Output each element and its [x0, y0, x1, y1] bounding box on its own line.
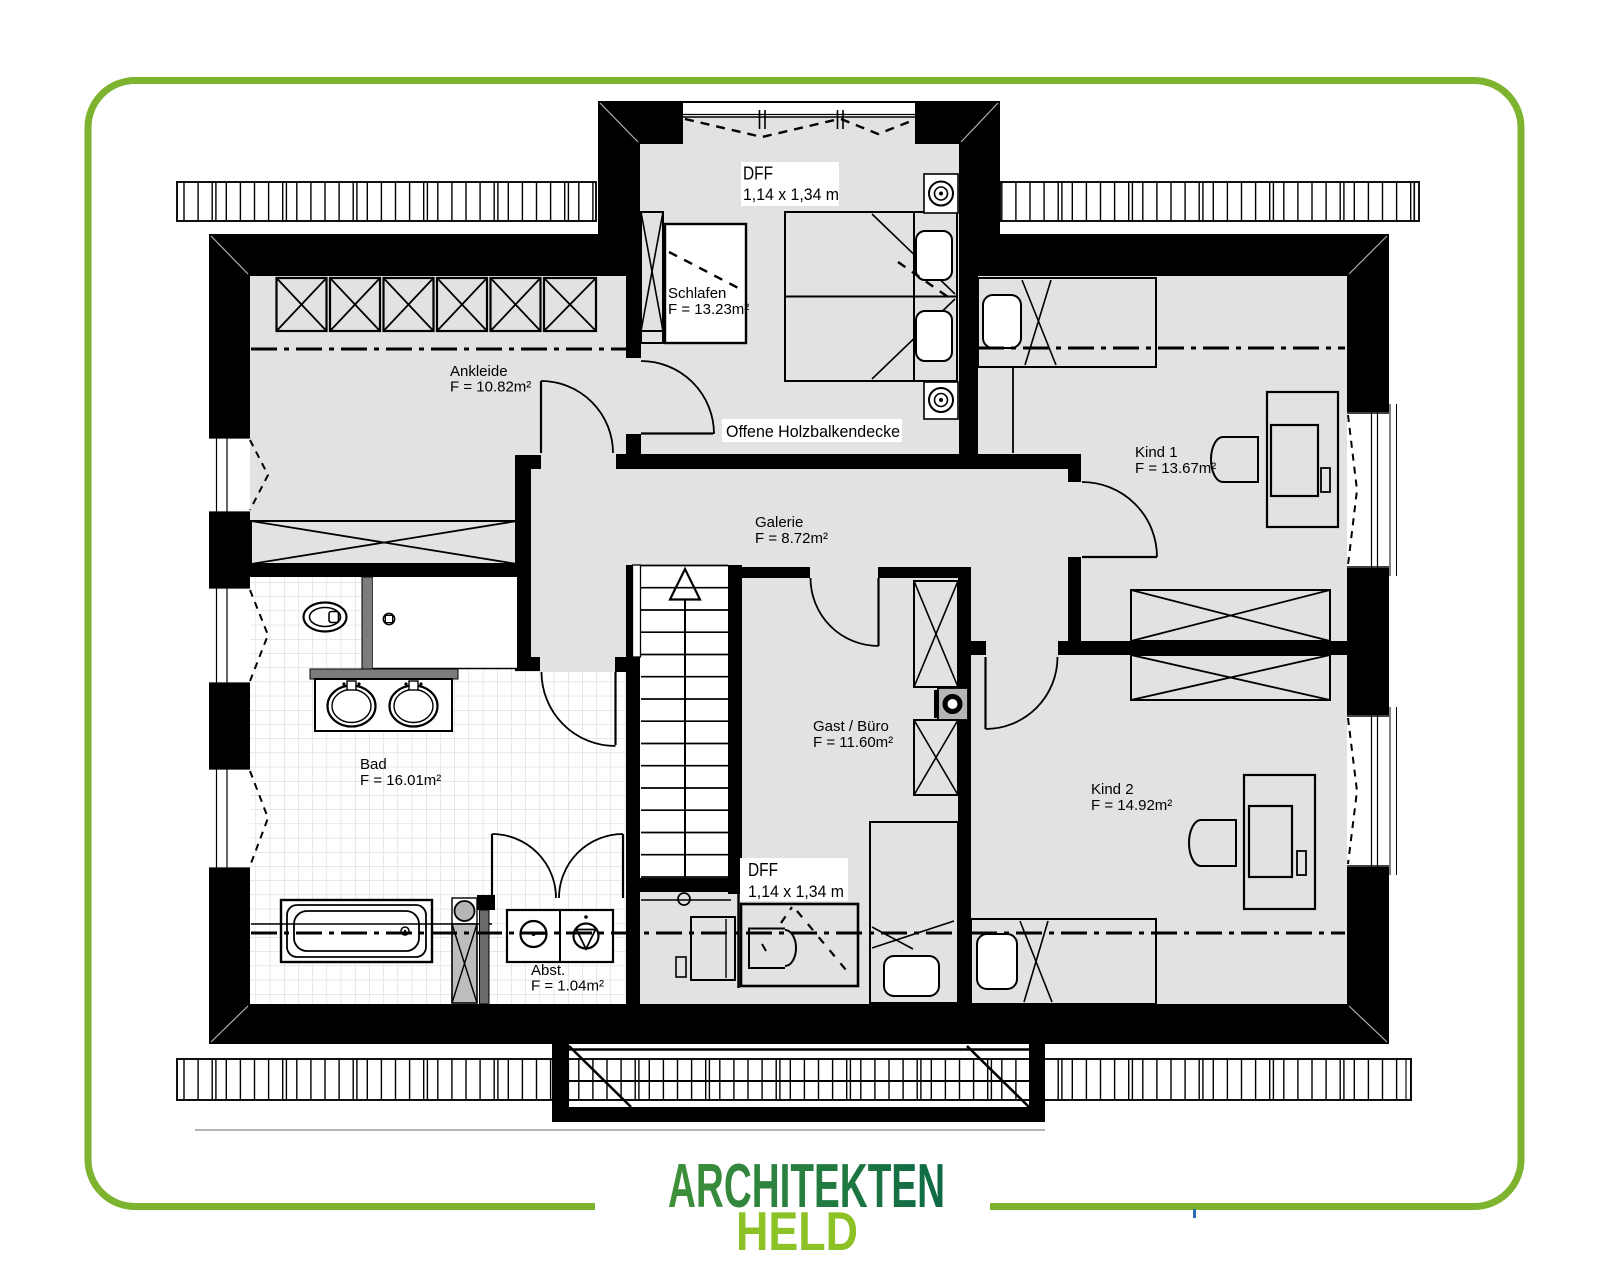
svg-text:F = 13.23m²: F = 13.23m²	[668, 301, 749, 318]
svg-text:Abst.: Abst.	[531, 962, 565, 979]
svg-text:F = 14.92m²: F = 14.92m²	[1091, 797, 1172, 814]
svg-text:Bad: Bad	[360, 756, 387, 773]
svg-text:Offene Holzbalkendecke: Offene Holzbalkendecke	[726, 422, 900, 441]
svg-text:DFF: DFF	[743, 164, 773, 184]
svg-text:Kind 2: Kind 2	[1091, 781, 1134, 798]
svg-text:1,14 x 1,34 m: 1,14 x 1,34 m	[748, 882, 844, 901]
svg-text:Gast / Büro: Gast / Büro	[813, 718, 889, 735]
svg-text:Ankleide: Ankleide	[450, 363, 508, 380]
svg-text:F = 8.72m²: F = 8.72m²	[755, 530, 828, 547]
svg-text:F = 11.60m²: F = 11.60m²	[813, 734, 893, 751]
svg-text:F = 13.67m²: F = 13.67m²	[1135, 460, 1216, 477]
svg-text:F = 1.04m²: F = 1.04m²	[531, 978, 604, 995]
svg-text:1,14 x 1,34 m: 1,14 x 1,34 m	[743, 185, 839, 204]
svg-text:Galerie: Galerie	[755, 514, 803, 531]
svg-text:F = 16.01m²: F = 16.01m²	[360, 772, 441, 789]
svg-text:DFF: DFF	[748, 860, 778, 880]
svg-text:Kind 1: Kind 1	[1135, 444, 1178, 461]
svg-text:F = 10.82m²: F = 10.82m²	[450, 379, 531, 396]
svg-text:HELD: HELD	[736, 1200, 858, 1262]
svg-text:Schlafen: Schlafen	[668, 285, 726, 302]
